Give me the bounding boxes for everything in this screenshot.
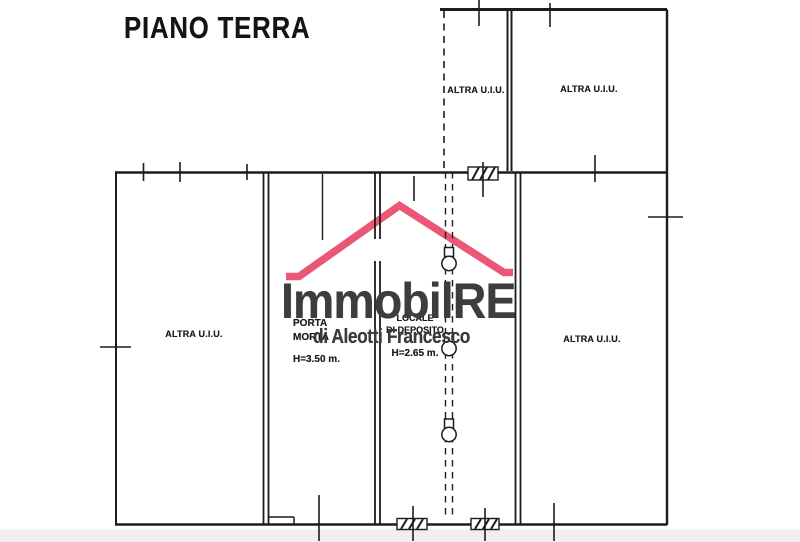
room-label-right-unit: ALTRA U.I.U. xyxy=(554,334,630,344)
room-label-left-unit: ALTRA U.I.U. xyxy=(156,329,232,339)
scanned-floor-plan-page: PIANO TERRA ALTRA U.I.U. ALTRA U.I.U. AL… xyxy=(0,0,800,542)
scan-edge-strip xyxy=(0,530,800,542)
page-title: PIANO TERRA xyxy=(124,10,310,46)
room-label-top-left-unit: ALTRA U.I.U. xyxy=(444,85,508,95)
well-neck xyxy=(445,248,454,257)
room-height-value: H=3.50 m. xyxy=(293,353,340,367)
well-circle xyxy=(442,256,456,270)
watermark-tagline: di Aleotti Francesco xyxy=(313,326,470,349)
floor-plan-drawing xyxy=(0,0,800,542)
paper-background xyxy=(0,0,800,542)
room-label-top-right-unit: ALTRA U.I.U. xyxy=(550,84,628,94)
watermark-brand: ImmobilRE xyxy=(281,272,515,330)
room-height-value: H=2.65 m. xyxy=(378,348,452,360)
well-circle xyxy=(442,427,456,441)
threshold-bottom-1 xyxy=(397,519,427,530)
